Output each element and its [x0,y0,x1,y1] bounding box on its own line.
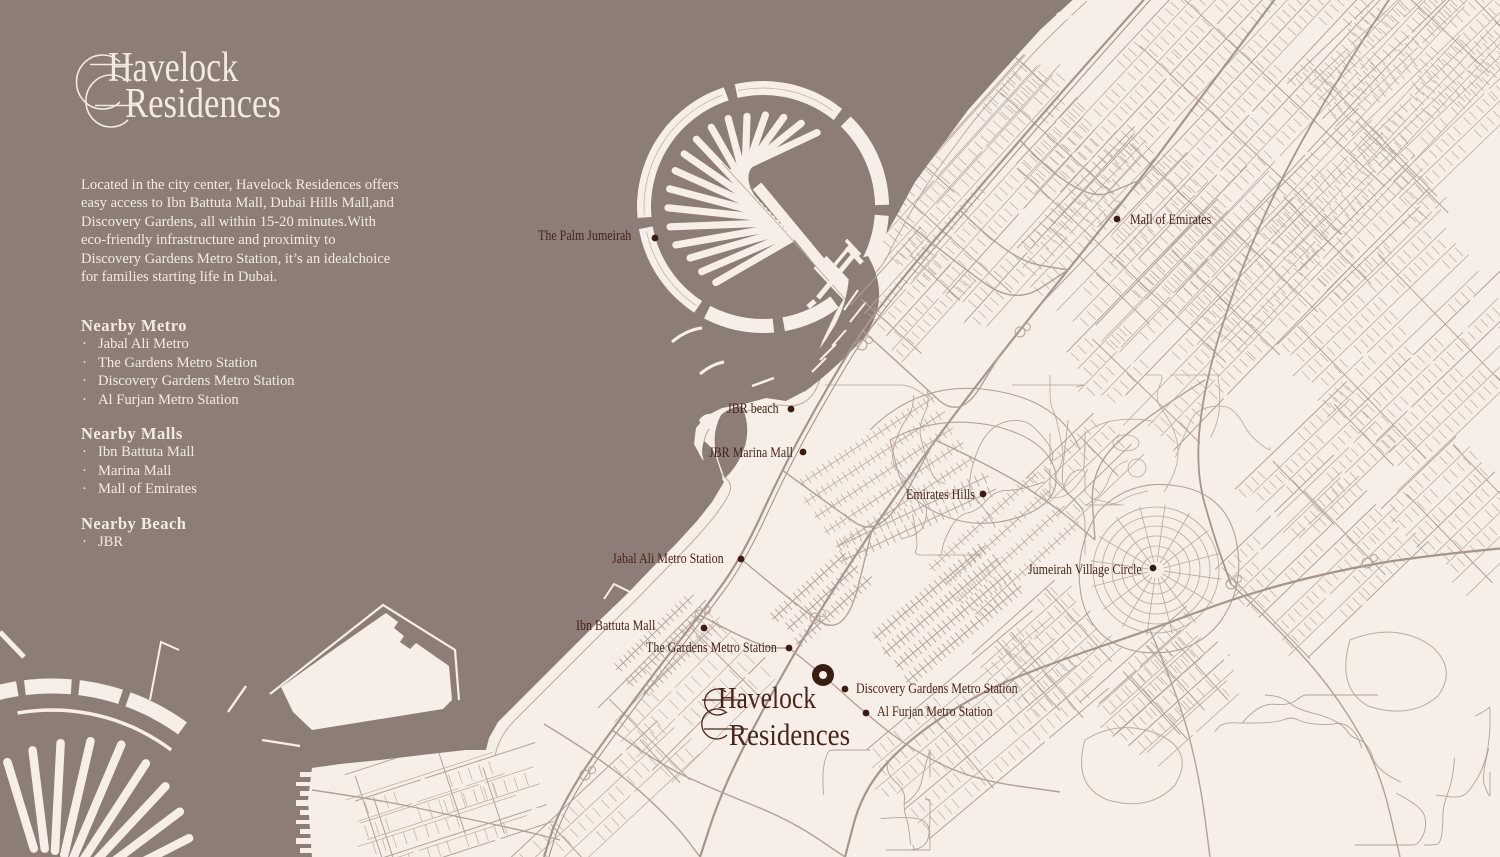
svg-text:·: · [82,373,87,389]
svg-text:JBR beach: JBR beach [727,400,779,417]
svg-text:Al Furjan Metro Station: Al Furjan Metro Station [98,392,239,408]
svg-text:·: · [82,534,87,550]
svg-text:·: · [82,463,87,479]
svg-text:Ibn Battuta Mall: Ibn Battuta Mall [98,444,194,460]
svg-text:Discovery Gardens Metro Statio: Discovery Gardens Metro Station, it’s an… [81,251,390,267]
svg-text:Nearby Beach: Nearby Beach [81,514,186,533]
svg-text:easy access to Ibn Battuta Mal: easy access to Ibn Battuta Mall, Dubai H… [81,195,395,211]
svg-text:Residences: Residences [125,81,281,127]
svg-text:Emirates Hills: Emirates Hills [906,486,975,503]
svg-text:·: · [82,336,87,352]
svg-text:Jabal Ali Metro: Jabal Ali Metro [98,336,189,352]
svg-text:Discovery Gardens Metro Statio: Discovery Gardens Metro Station [98,373,295,389]
svg-text:Discovery Gardens Metro Statio: Discovery Gardens Metro Station [856,680,1018,697]
svg-text:Located in the city center, Ha: Located in the city center, Havelock Res… [81,177,399,193]
svg-text:JBR: JBR [98,534,123,550]
svg-text:The Gardens Metro Station: The Gardens Metro Station [646,639,777,656]
svg-text:Mall of Emirates: Mall of Emirates [98,481,197,497]
svg-text:eco-friendly infrastructure an: eco-friendly infrastructure and proximit… [81,232,336,248]
svg-text:·: · [82,355,87,371]
svg-text:Nearby Metro: Nearby Metro [81,316,187,335]
svg-text:The Gardens Metro Station: The Gardens Metro Station [98,355,258,371]
svg-text:Marina Mall: Marina Mall [98,463,171,479]
svg-text:·: · [82,481,87,497]
svg-text:The Palm Jumeirah: The Palm Jumeirah [538,227,631,244]
svg-text:Al Furjan Metro Station: Al Furjan Metro Station [877,703,993,720]
svg-text:Jumeirah Village Circle: Jumeirah Village Circle [1028,561,1142,578]
svg-text:·: · [82,444,87,460]
svg-text:Discovery Gardens, all within: Discovery Gardens, all within 15-20 minu… [81,214,377,230]
svg-text:Nearby Malls: Nearby Malls [81,424,183,443]
svg-text:Mall of Emirates: Mall of Emirates [1130,211,1211,228]
svg-text:·: · [82,392,87,408]
svg-text:Ibn Battuta Mall: Ibn Battuta Mall [576,617,655,634]
svg-text:Residences: Residences [729,718,850,752]
svg-text:JBR Marina Mall: JBR Marina Mall [709,444,793,461]
svg-text:Havelock: Havelock [718,682,817,716]
svg-text:Jabal Ali Metro Station: Jabal Ali Metro Station [612,550,724,567]
svg-text:for families starting life in: for families starting life in Dubai. [81,269,277,285]
